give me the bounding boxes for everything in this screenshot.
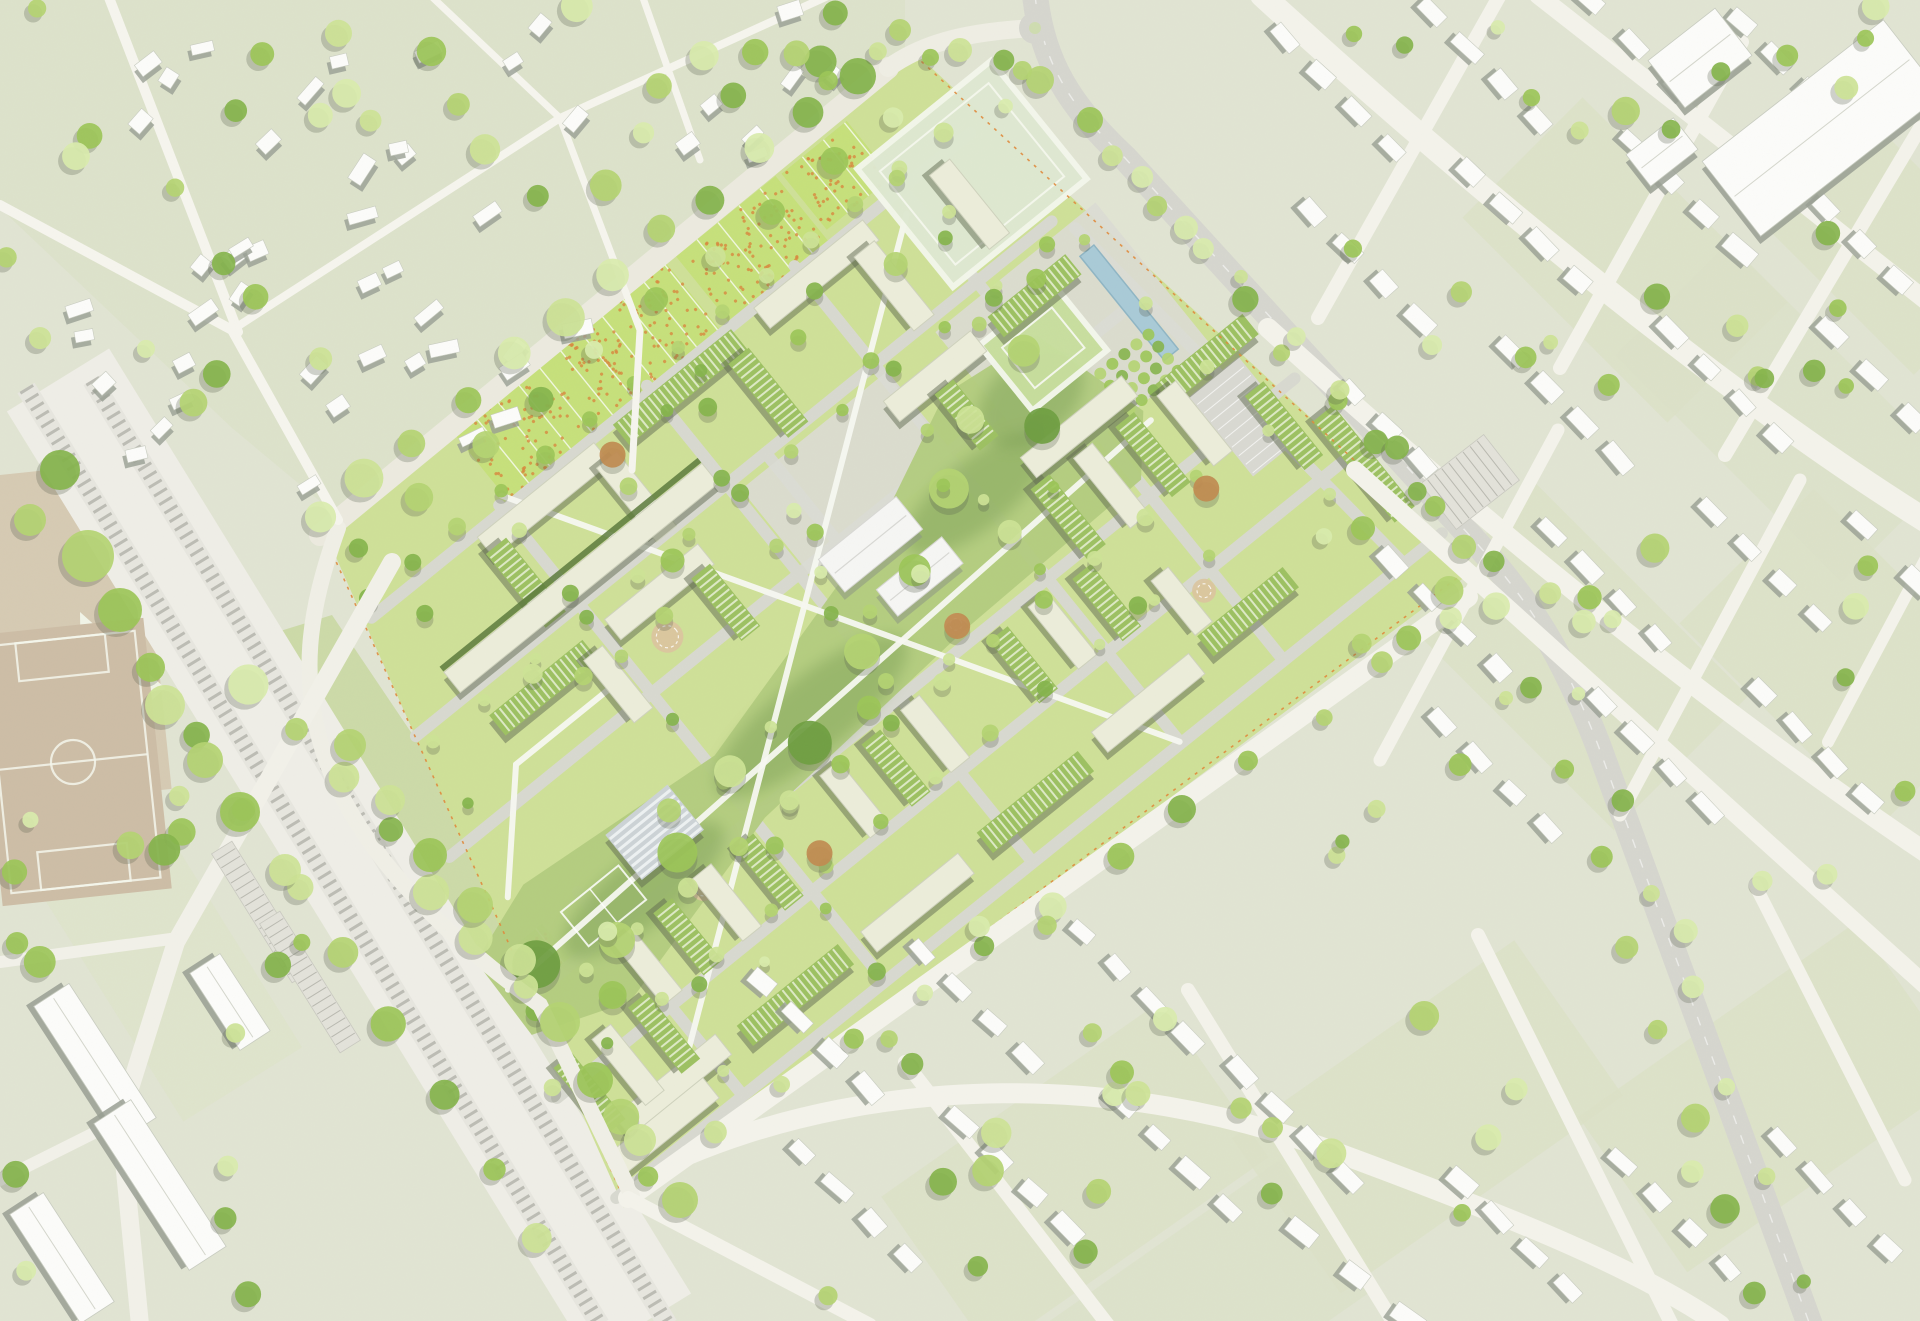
- masterplan-map: [0, 0, 1920, 1321]
- paper-texture-overlay: [0, 0, 1920, 1321]
- masterplan-canvas: [0, 0, 1920, 1321]
